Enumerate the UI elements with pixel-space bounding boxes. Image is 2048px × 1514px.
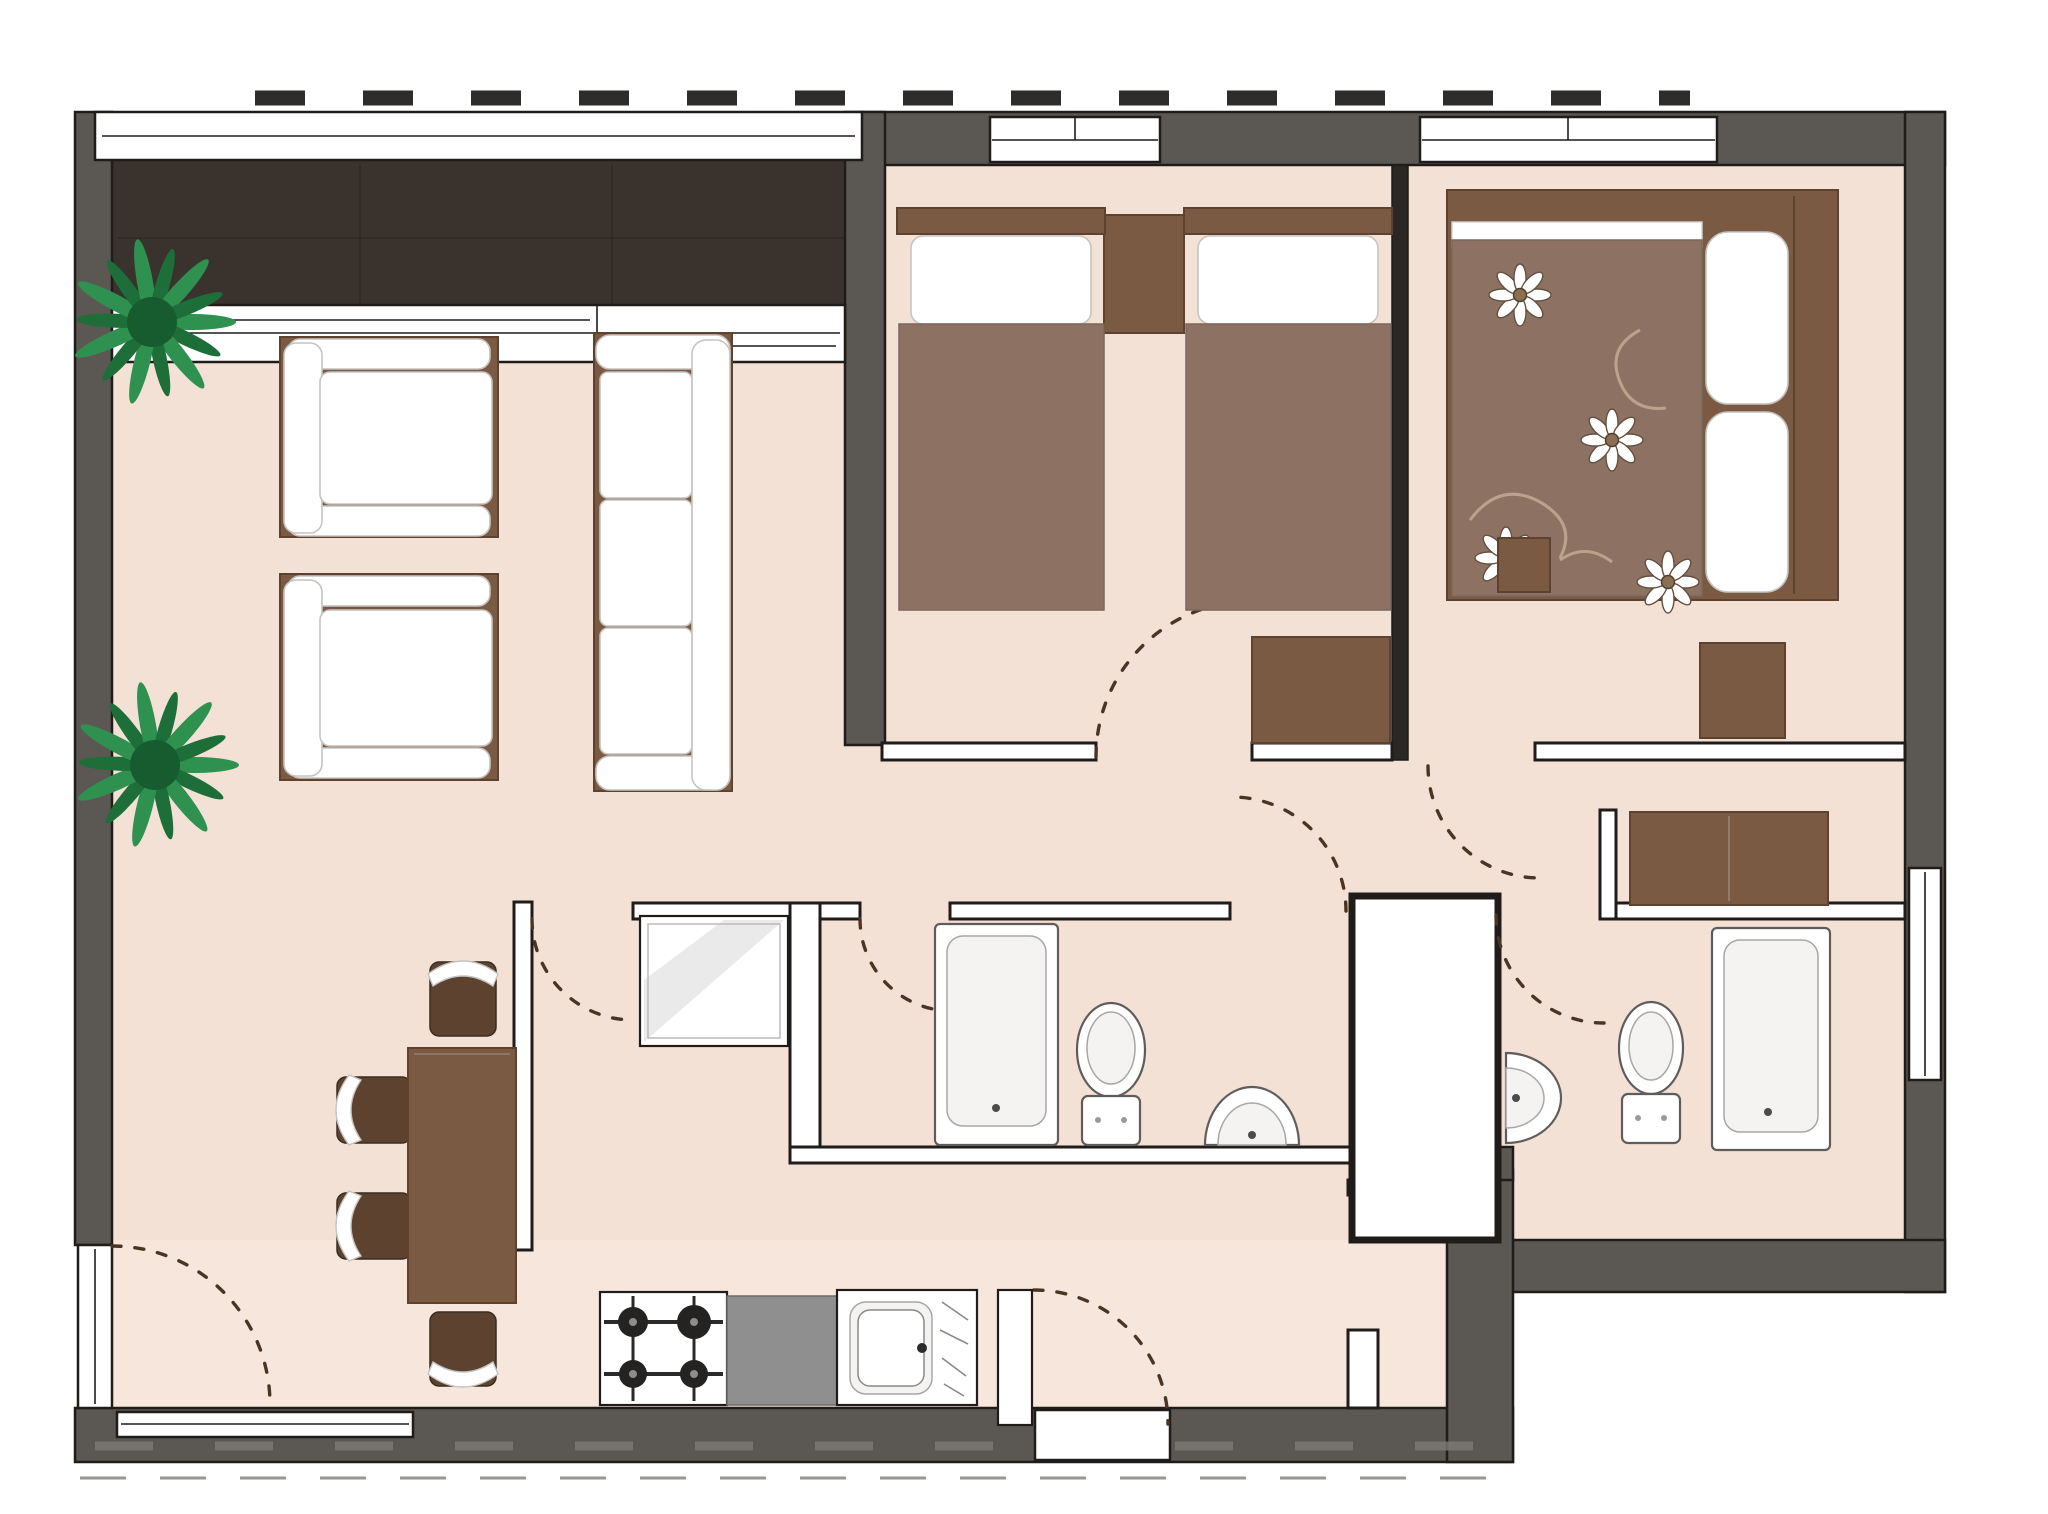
entry-door-opening [78,1245,112,1408]
dining-chair [428,961,498,1036]
sofa [594,333,732,791]
wall-living-bedroom-divider [845,112,885,745]
window-bottom-wall [117,1412,413,1437]
wall-bathroom1-top-b [950,903,1230,919]
stool [1498,538,1550,592]
wall-hall-bedroom1-a [882,743,1096,760]
bathtub [1712,928,1830,1150]
duct-shaft [1352,896,1498,1240]
wall-bathroom1-top-a [820,903,860,919]
window-master [1420,117,1717,162]
service-door-leaf [998,1290,1032,1425]
wall-bedroom-divider [1392,165,1408,760]
wall-kitchen-entry-b [1348,1330,1378,1408]
kitchen-sink [837,1290,977,1405]
floor-plan [0,0,2048,1514]
desk [1252,637,1390,743]
service-door-opening [1035,1410,1170,1460]
window-bedroom1 [990,117,1160,162]
window-right-wall [1909,868,1941,1080]
balcony-floor [112,160,855,310]
armchair [280,337,498,537]
kitchen-counter [727,1296,837,1405]
refrigerator [640,916,788,1046]
wall-bathroom1-left [790,903,820,1155]
dining-chair [336,1075,411,1145]
daisy-icon [1581,409,1643,471]
balcony-railing [95,112,862,160]
daisy-icon [1637,551,1699,613]
dining-table [408,1048,516,1303]
single-bed [897,208,1105,610]
armchair [280,574,498,780]
daisy-icon [1489,264,1551,326]
toilet [1077,1003,1145,1145]
nightstand [1700,643,1785,738]
wardrobe [1630,812,1828,905]
wall-right [1905,112,1945,1292]
nightstand [1104,215,1184,333]
toilet [1619,1002,1683,1143]
dining-chair [336,1191,411,1261]
dining-chair [428,1312,498,1387]
wall-wardrobe-nook [1600,810,1616,919]
bathtub [935,924,1058,1145]
stove [600,1292,727,1405]
wall-bottom-right-section [1498,1240,1945,1292]
wall-bathroom1-bottom [790,1147,1352,1163]
single-bed [1184,208,1392,610]
wall-hall-bedroom1-b [1252,743,1392,760]
wall-hall-master [1535,743,1905,760]
